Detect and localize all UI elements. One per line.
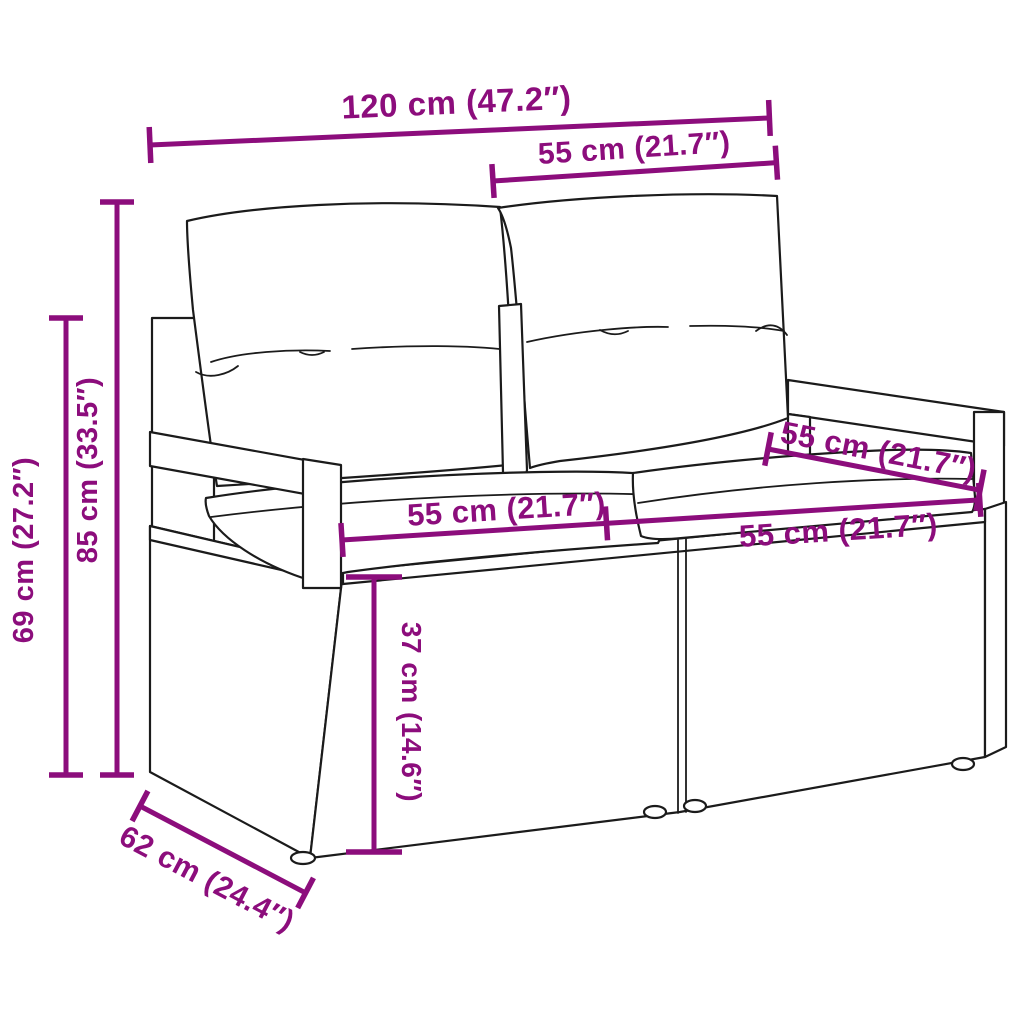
dimension-diagram: 120 cm (47.2″) 55 cm (21.7″) 85 cm (33.5… [0, 0, 1024, 1024]
dimension-overall-height: 85 cm (33.5″) [72, 202, 134, 775]
overall-width-label: 120 cm (47.2″) [341, 79, 573, 126]
sofa-back-cushion-left [187, 203, 518, 486]
sofa-back-cushion-right [498, 194, 788, 468]
dimension-back-cushion-width: 55 cm (21.7″) [490, 123, 777, 198]
frame-height-label: 69 cm (27.2″) [8, 457, 40, 643]
overall-height-label: 85 cm (33.5″) [72, 377, 104, 563]
back-cushion-width-label: 55 cm (21.7″) [537, 126, 731, 171]
diagram-canvas: 120 cm (47.2″) 55 cm (21.7″) 85 cm (33.5… [0, 0, 1024, 1024]
seat-height-label: 37 cm (14.6″) [396, 622, 427, 802]
